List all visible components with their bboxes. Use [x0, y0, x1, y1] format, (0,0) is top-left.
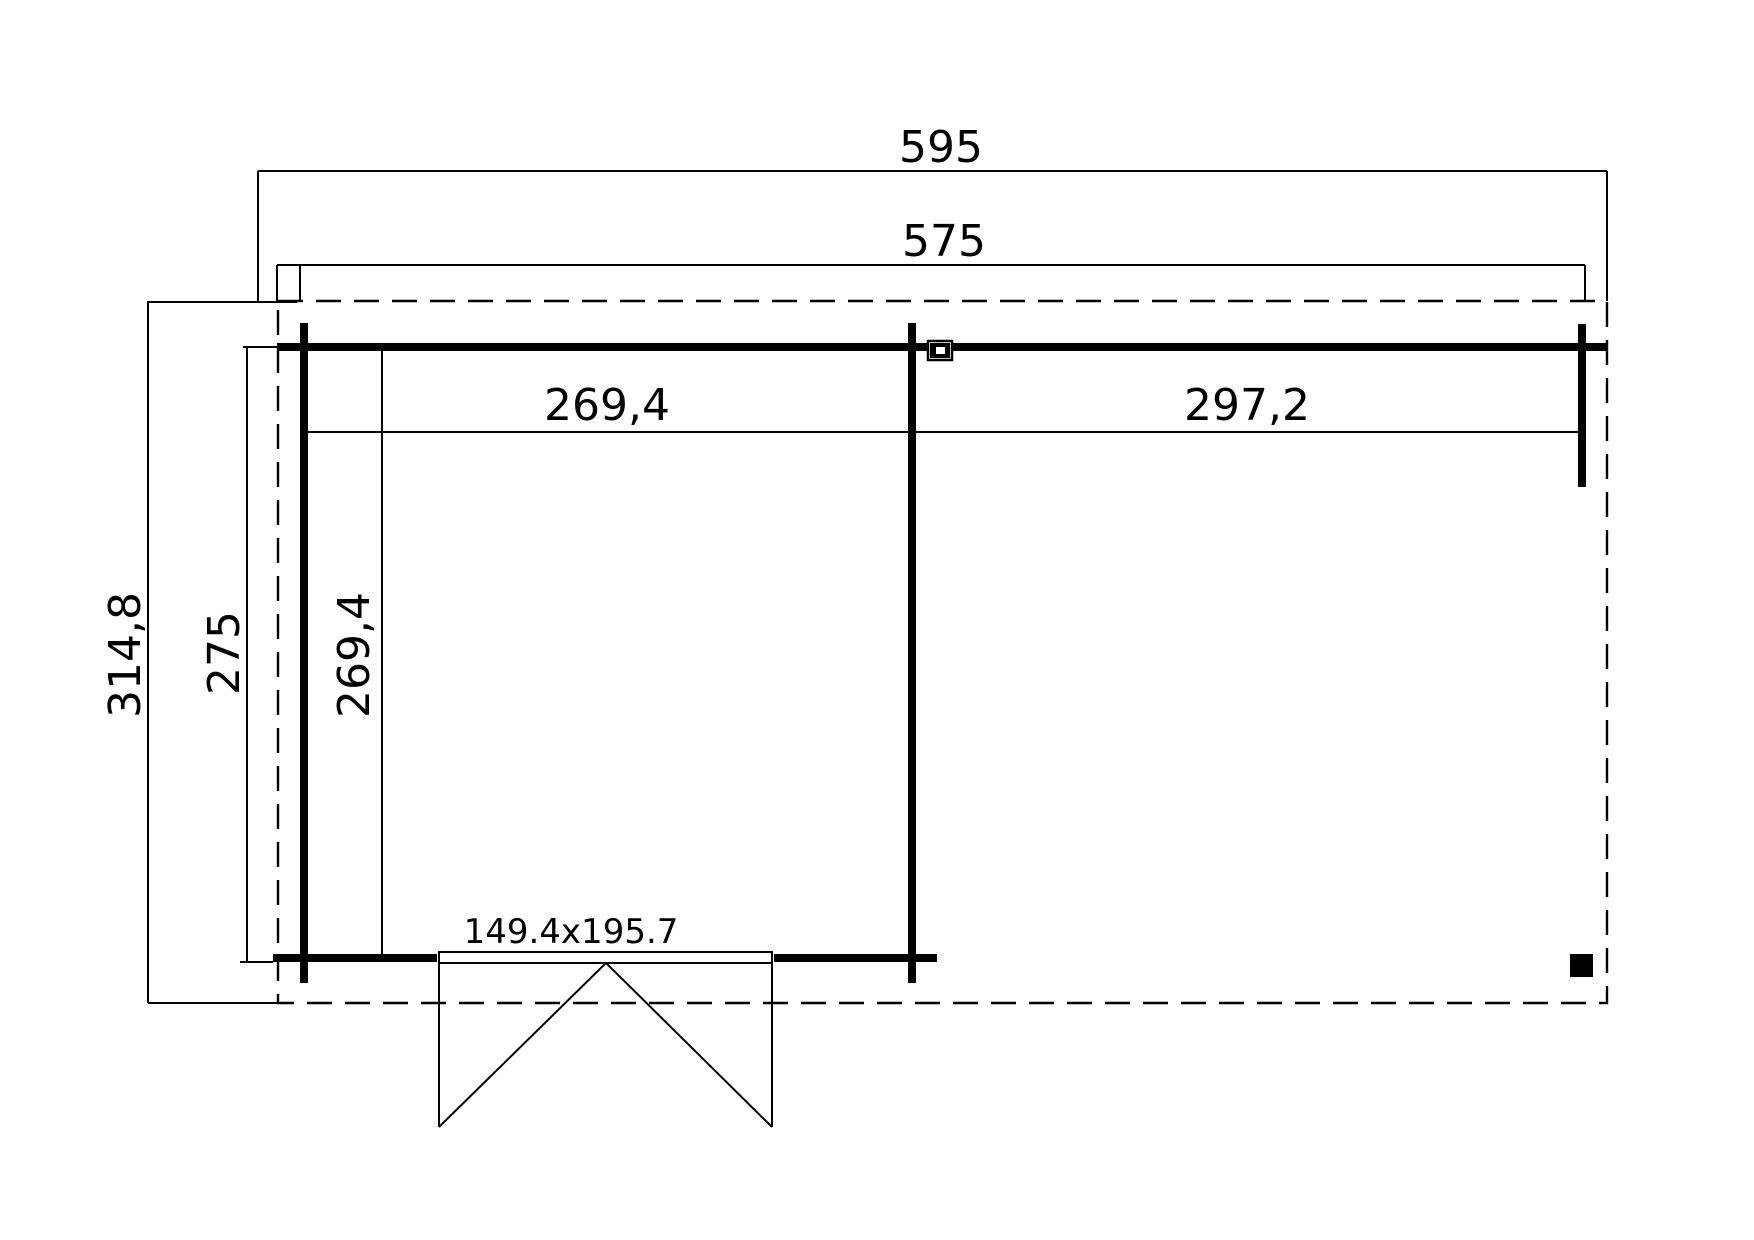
double-door-symbol — [438, 952, 773, 1127]
dim-label-overall-depth: 314,8 — [104, 592, 148, 718]
floor-plan-canvas: 595 575 269,4 297,2 314,8 275 269,4 149.… — [0, 0, 1754, 1240]
door-swing-left — [439, 963, 606, 1127]
dim-label-wall-width: 575 — [902, 220, 986, 264]
right-wall-post — [1578, 324, 1586, 487]
log-connector-symbol — [928, 341, 952, 360]
roof-overhang-outline — [278, 301, 1607, 1003]
door-size-label: 149.4x195.7 — [464, 915, 679, 949]
bottom-wall-right-segment — [774, 954, 937, 962]
dimension-lines — [147, 171, 1607, 1003]
terrace-corner-post-marker — [1570, 954, 1593, 977]
dim-label-room-width: 269,4 — [544, 384, 670, 428]
dim-label-overall-width: 595 — [899, 126, 983, 170]
bottom-wall-left-segment — [273, 954, 437, 962]
partition-wall-post — [908, 323, 916, 983]
dim-label-terrace-width: 297,2 — [1184, 384, 1310, 428]
connector-inner-rect — [936, 347, 945, 354]
door-swing-right — [606, 963, 772, 1127]
floor-plan-drawing — [0, 0, 1754, 1240]
left-wall-post — [300, 323, 308, 983]
dim-label-room-depth: 269,4 — [333, 592, 377, 718]
dim-label-wall-depth: 275 — [203, 611, 247, 695]
walls — [273, 323, 1607, 983]
